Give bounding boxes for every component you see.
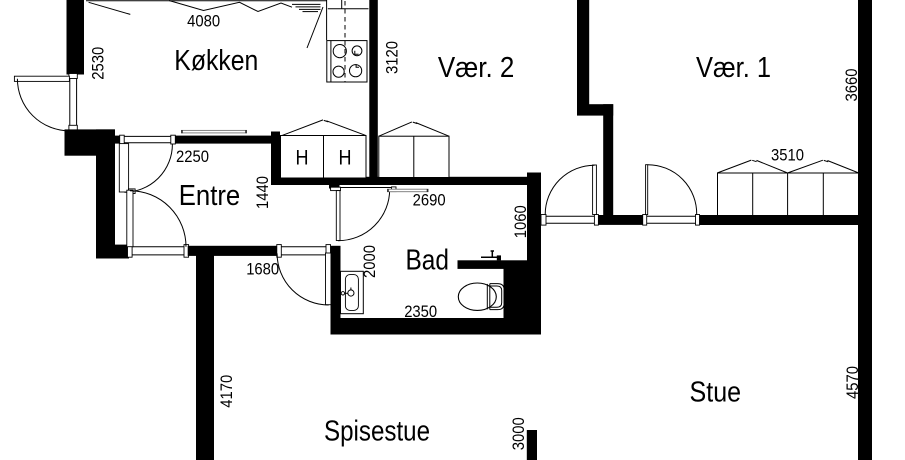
svg-text:2350: 2350	[404, 302, 437, 321]
svg-text:2530: 2530	[88, 47, 107, 80]
svg-text:Bad: Bad	[405, 245, 449, 277]
svg-text:Vær. 1: Vær. 1	[696, 52, 771, 84]
svg-text:3660: 3660	[842, 69, 861, 102]
svg-text:Stue: Stue	[690, 376, 742, 408]
svg-text:Entre: Entre	[179, 180, 241, 212]
svg-text:3000: 3000	[509, 417, 528, 450]
svg-text:4570: 4570	[843, 366, 862, 399]
svg-text:4080: 4080	[187, 11, 220, 30]
svg-text:Køkken: Køkken	[174, 45, 258, 77]
svg-text:2000: 2000	[360, 245, 379, 278]
svg-text:3510: 3510	[771, 146, 804, 165]
svg-text:1440: 1440	[253, 176, 272, 209]
svg-text:4170: 4170	[217, 375, 236, 408]
svg-text:1680: 1680	[246, 259, 279, 278]
svg-text:Vær. 2: Vær. 2	[438, 52, 515, 84]
svg-text:H: H	[339, 147, 352, 170]
svg-text:2250: 2250	[176, 147, 209, 166]
svg-text:2690: 2690	[413, 190, 446, 209]
svg-text:H: H	[296, 147, 309, 170]
svg-text:Spisestue: Spisestue	[324, 415, 430, 447]
svg-text:1060: 1060	[511, 205, 530, 238]
svg-text:3120: 3120	[383, 41, 402, 74]
